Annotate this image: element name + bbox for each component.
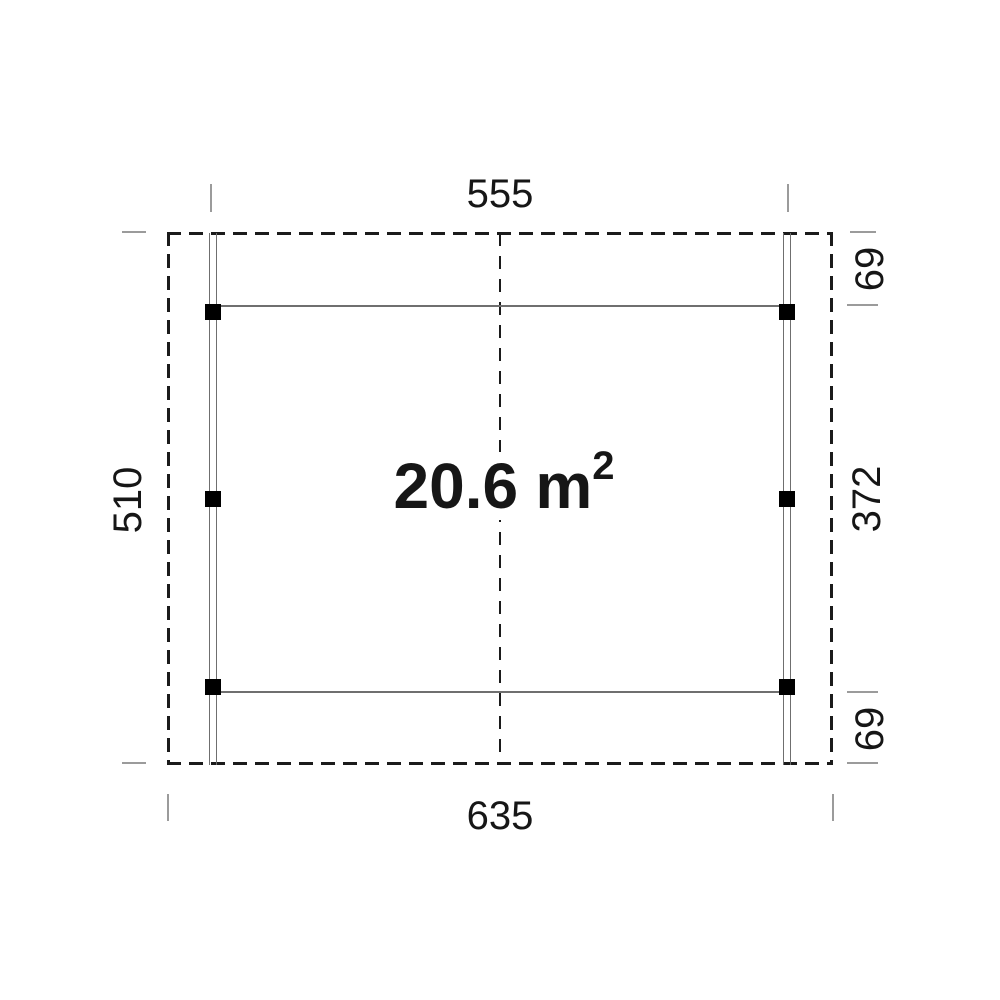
area-unit: m (535, 450, 592, 522)
dim-label-right-middle: 372 (847, 466, 887, 533)
floor-plan-diagram: 555 635 510 69 372 69 20.6m2 (0, 0, 1000, 1000)
post-marker-left-top (205, 304, 221, 320)
post-marker-right-bottom (779, 679, 795, 695)
tick-top-dim-left (210, 184, 212, 212)
beam-bottom (213, 691, 788, 693)
dim-label-top: 555 (467, 174, 534, 214)
plan-outline-left-edge (167, 232, 170, 765)
area-exponent: 2 (592, 444, 614, 488)
plan-outline-right-edge (830, 232, 833, 765)
dim-label-right-top: 69 (850, 247, 890, 292)
post-marker-left-bottom (205, 679, 221, 695)
post-marker-right-middle (779, 491, 795, 507)
dim-label-bottom: 635 (467, 796, 534, 836)
tick-right-dim-1 (850, 231, 876, 233)
tick-bottom-dim-right (832, 794, 834, 821)
tick-right-dim-2 (847, 304, 878, 306)
tick-bottom-dim-left (167, 794, 169, 821)
area-label: 20.6m2 (382, 452, 627, 520)
dim-label-right-bottom: 69 (850, 707, 890, 752)
tick-right-dim-3 (847, 691, 878, 693)
tick-top-dim-right (787, 184, 789, 212)
post-marker-left-middle (205, 491, 221, 507)
beam-top (213, 305, 788, 307)
tick-right-dim-4 (847, 762, 878, 764)
post-marker-right-top (779, 304, 795, 320)
area-value: 20.6 (394, 450, 519, 522)
tick-left-dim-upper (122, 231, 146, 233)
tick-left-dim-lower (122, 762, 146, 764)
dim-label-left: 510 (108, 467, 148, 534)
